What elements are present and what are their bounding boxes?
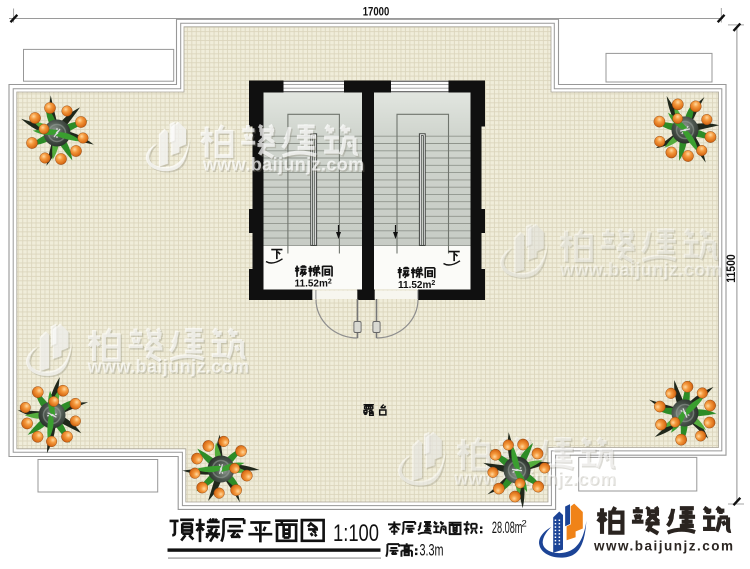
svg-text:11500: 11500: [726, 254, 738, 283]
svg-text:2: 2: [522, 519, 527, 530]
svg-text:www.baijunjz.com: www.baijunjz.com: [593, 539, 735, 554]
svg-text:3.3m: 3.3m: [420, 541, 444, 559]
svg-text:11.52m2: 11.52m2: [398, 280, 435, 291]
svg-text:17000: 17000: [363, 6, 390, 18]
svg-text:11.52m2: 11.52m2: [295, 279, 332, 290]
svg-text:1:100: 1:100: [333, 520, 379, 547]
svg-text:28.08m: 28.08m: [492, 519, 522, 537]
